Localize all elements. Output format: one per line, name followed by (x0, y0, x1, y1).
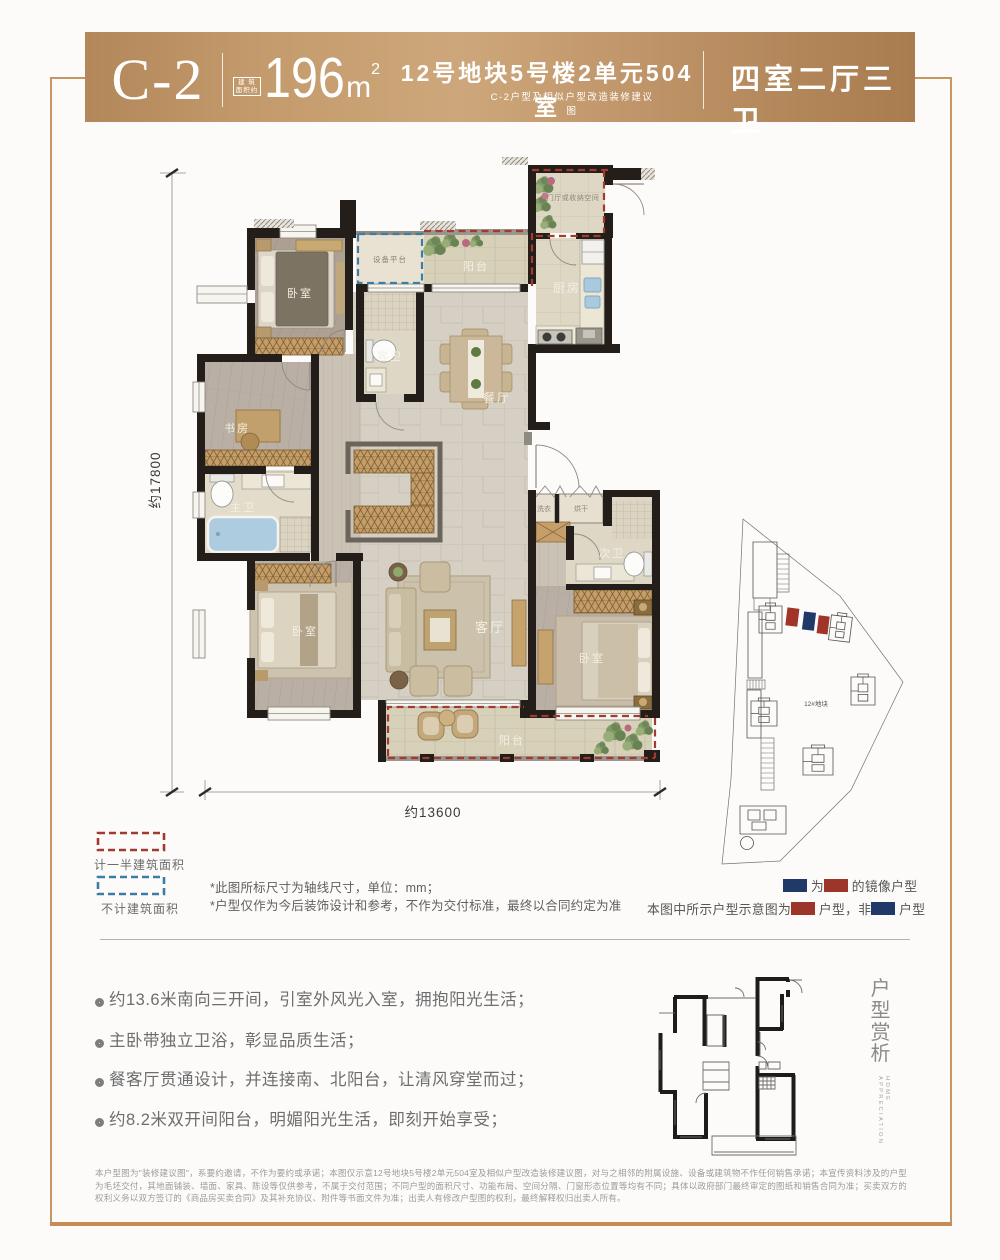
svg-text:洗衣: 洗衣 (537, 504, 551, 513)
svg-text:12#地块: 12#地块 (804, 699, 828, 708)
svg-text:主卫: 主卫 (230, 501, 256, 514)
svg-text:门厅或收纳空间: 门厅或收纳空间 (547, 193, 600, 202)
svg-text:设备平台: 设备平台 (373, 254, 407, 264)
svg-text:客卫: 客卫 (377, 349, 403, 363)
svg-text:约13600: 约13600 (404, 805, 461, 820)
svg-text:卧室: 卧室 (287, 286, 313, 300)
svg-text:阳台: 阳台 (499, 733, 525, 747)
svg-text:书房: 书房 (224, 422, 250, 435)
svg-text:餐厅: 餐厅 (483, 390, 511, 405)
svg-text:客厅: 客厅 (475, 620, 505, 635)
svg-text:卧室: 卧室 (292, 624, 318, 638)
svg-text:厨房: 厨房 (553, 280, 581, 295)
svg-text:次卫: 次卫 (599, 546, 625, 560)
svg-text:约17800: 约17800 (148, 451, 163, 508)
svg-text:卧室: 卧室 (579, 651, 605, 665)
svg-text:烘干: 烘干 (574, 504, 588, 513)
svg-text:阳台: 阳台 (463, 259, 489, 273)
